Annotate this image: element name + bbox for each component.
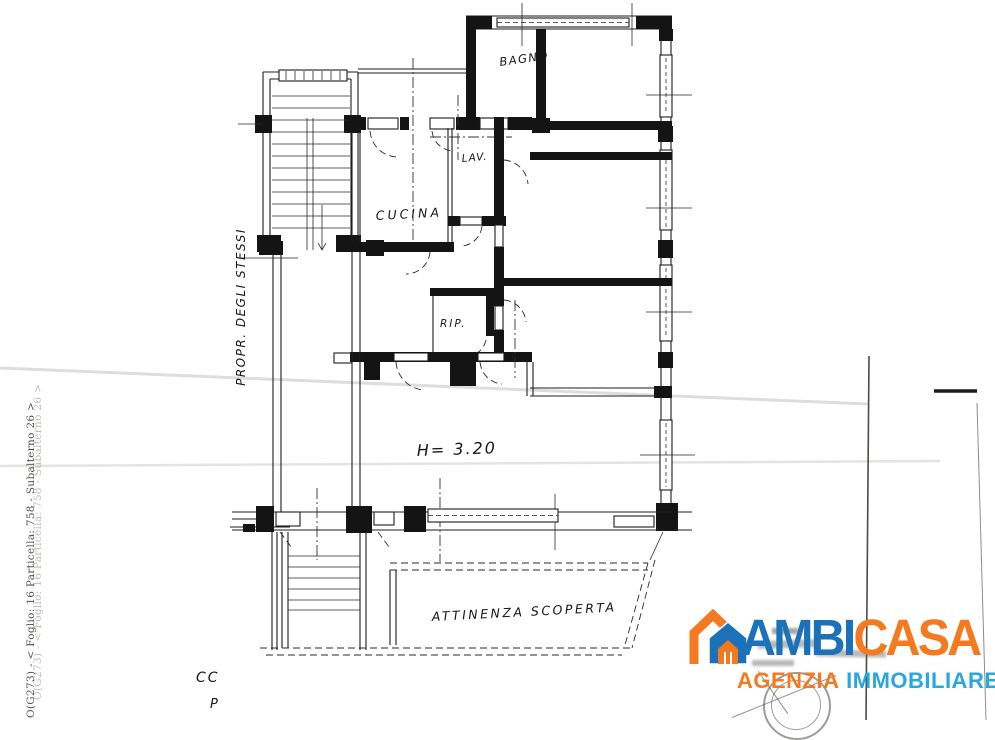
room-label-cucina: CUCINA [375, 205, 442, 223]
south-window-small [614, 516, 654, 527]
entry-door [368, 118, 398, 129]
ambicasa-logo: AMBICASA AGENZIA IMMOBILIARE [691, 608, 993, 720]
corner-note-bottom: P [210, 697, 218, 712]
room-cucina: CUCINA [350, 128, 454, 274]
spine-wall [494, 117, 504, 360]
brand-casa: CASA [853, 609, 979, 666]
yard: ATTINENZA SCOPERTA [260, 532, 663, 655]
brand-tagline: AGENZIA IMMOBILIARE [737, 668, 995, 694]
room-label-rip: RIP. [440, 318, 467, 330]
south-door-2 [374, 512, 394, 525]
lav-door [460, 217, 482, 225]
brand-ambi: AMBI [741, 609, 853, 666]
stair-treads [272, 96, 350, 250]
tagline-immobiliare: IMMOBILIARE [846, 668, 995, 693]
tagline-agenzia: AGENZIA [737, 668, 840, 693]
room-label-lav: LAV. [461, 151, 488, 165]
corridor-door-2 [478, 353, 504, 361]
south-door-1 [276, 512, 300, 526]
corridor-door-1 [394, 353, 428, 361]
height-annotation: H= 3.20 [416, 438, 497, 460]
room-rip: RIP. [430, 288, 494, 356]
cadastral-note-ghost: O(G273) - < Foglio: 16 Particella: 758 -… [32, 384, 44, 700]
south-wall [230, 506, 692, 548]
north-wall [466, 3, 672, 46]
yard-label: ATTINENZA SCOPERTA [430, 599, 616, 624]
stairwell [238, 70, 361, 258]
yard-stair-treads [288, 556, 360, 610]
brand-wordmark: AMBICASA [741, 612, 979, 663]
hall-door [430, 118, 454, 129]
houses-icon [689, 608, 749, 664]
corner-note-top: CC [196, 670, 220, 686]
cadastral-note-group: O(G273) - < Foglio: 16 Particella: 758 -… [25, 384, 44, 718]
ownership-note: PROPR. DEGLI STESSI [234, 228, 248, 386]
